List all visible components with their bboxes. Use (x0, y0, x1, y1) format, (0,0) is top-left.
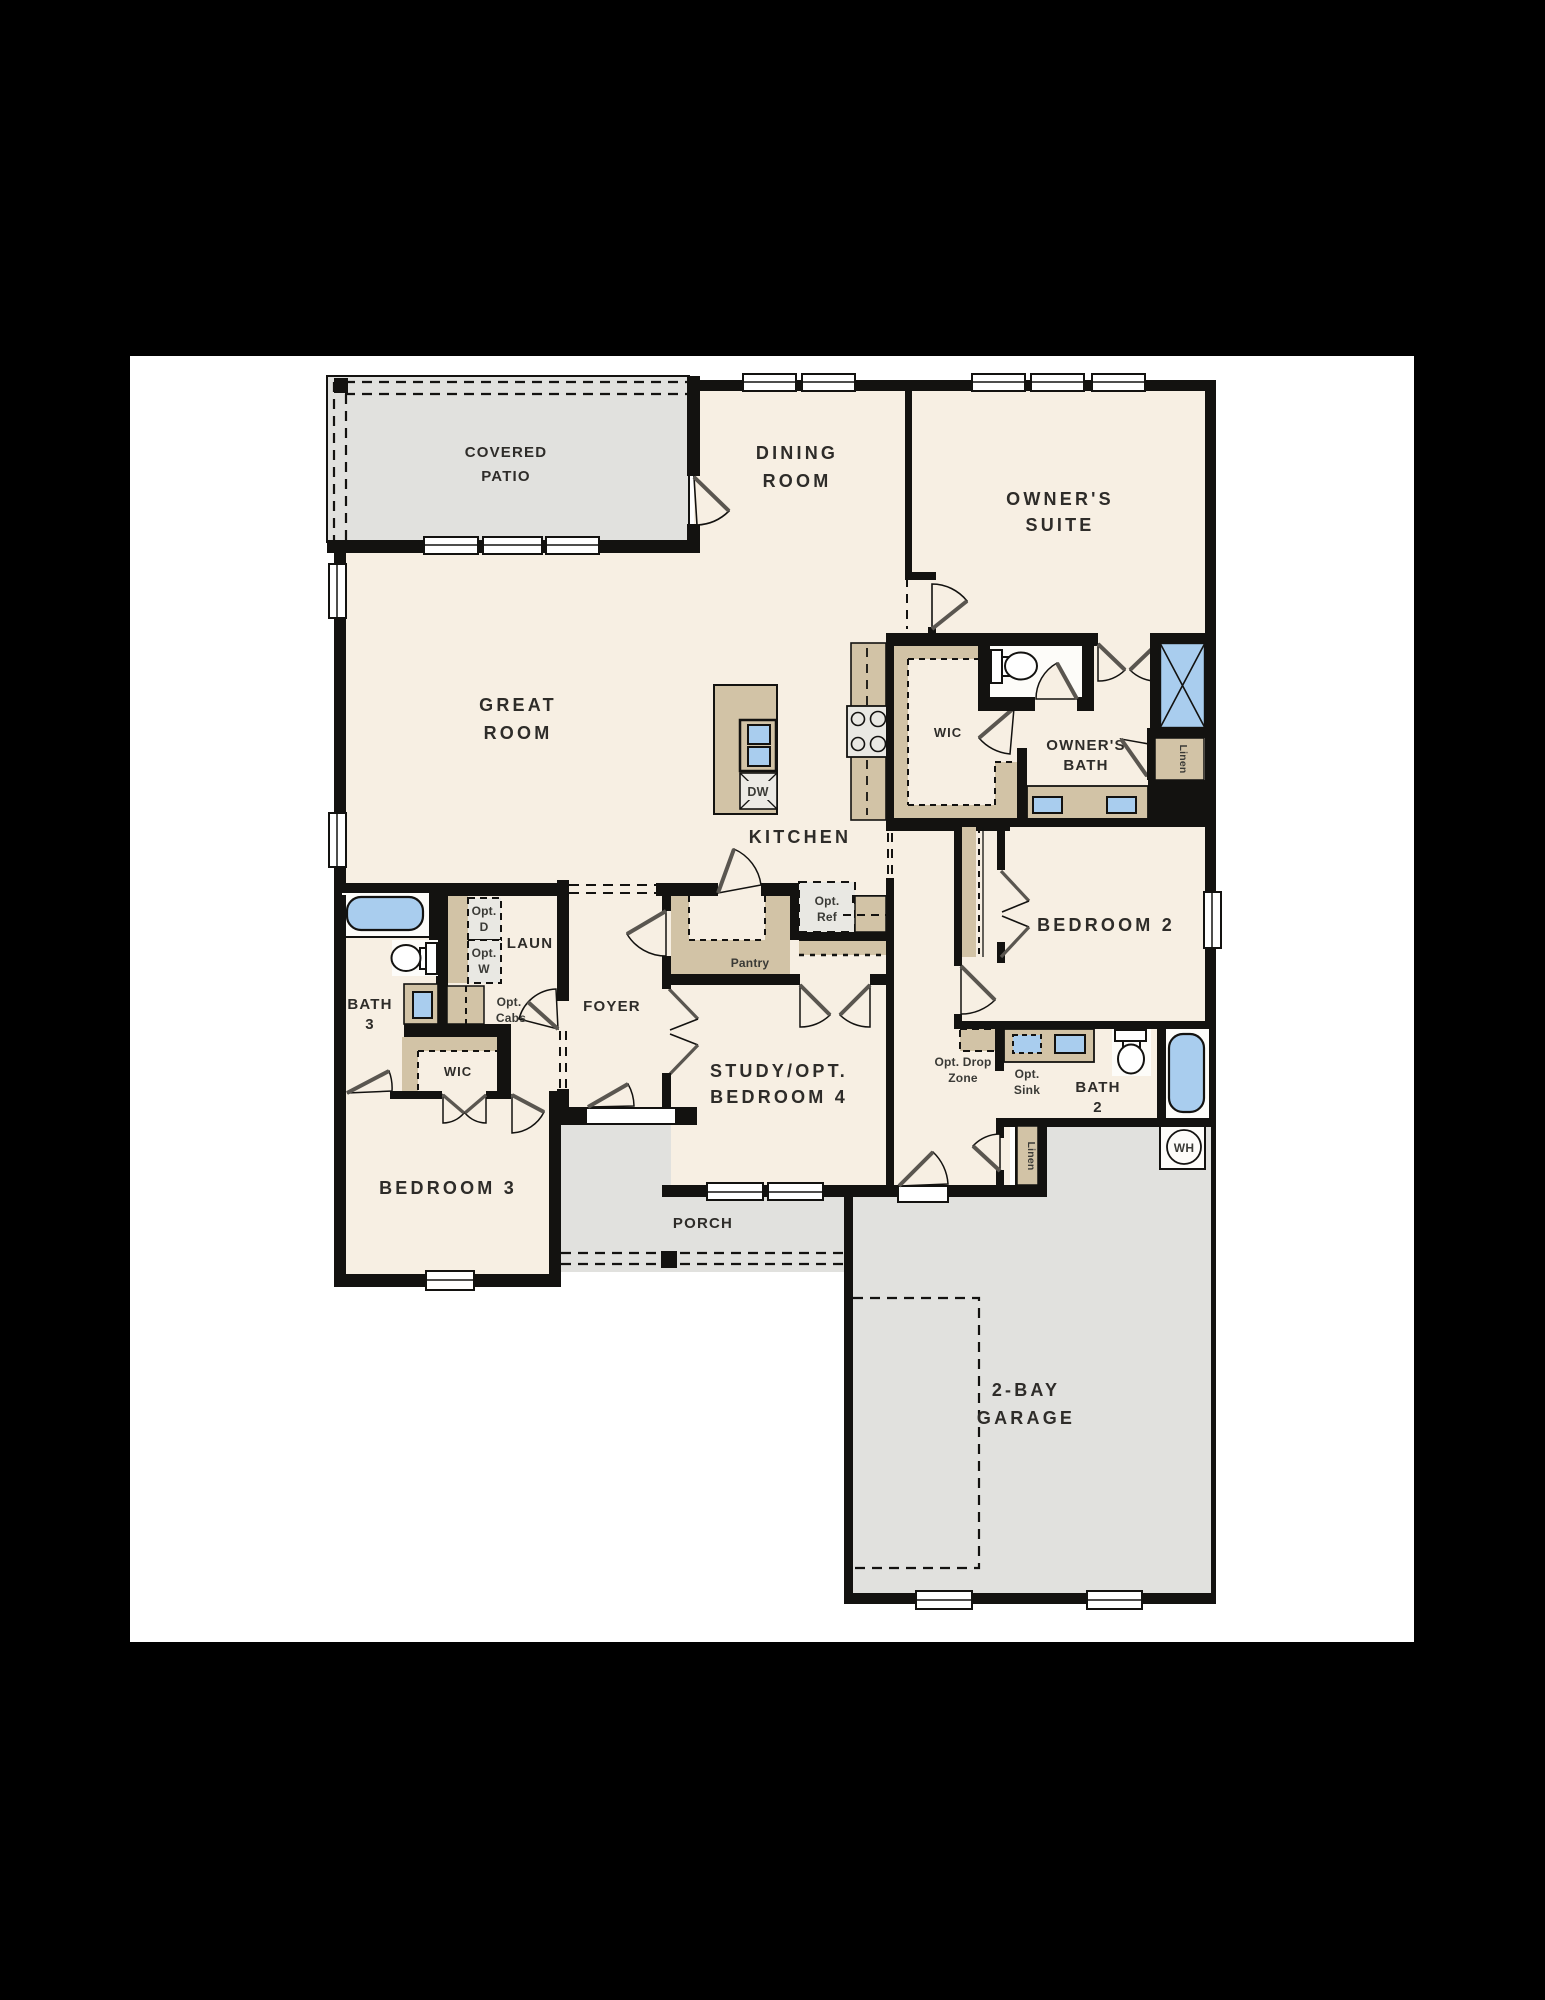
svg-text:Opt.: Opt. (815, 894, 840, 908)
svg-text:DINING: DINING (756, 443, 838, 463)
svg-text:D: D (480, 920, 489, 934)
svg-text:Opt.: Opt. (472, 946, 497, 960)
svg-text:Opt.: Opt. (497, 995, 522, 1009)
svg-text:Opt.: Opt. (472, 904, 497, 918)
svg-text:PATIO: PATIO (481, 468, 531, 485)
svg-text:W: W (478, 962, 490, 976)
svg-text:WIC: WIC (934, 725, 962, 740)
svg-text:GARAGE: GARAGE (977, 1408, 1075, 1428)
svg-text:COVERED: COVERED (465, 444, 548, 461)
svg-text:WIC: WIC (444, 1064, 472, 1079)
svg-text:FOYER: FOYER (583, 998, 641, 1015)
svg-text:Opt.: Opt. (1015, 1067, 1040, 1081)
svg-text:Opt. Drop: Opt. Drop (934, 1055, 991, 1069)
svg-text:OWNER'S: OWNER'S (1006, 489, 1114, 509)
svg-text:OWNER'S: OWNER'S (1046, 737, 1125, 754)
svg-text:LAUN: LAUN (507, 935, 553, 952)
svg-text:Pantry: Pantry (731, 956, 770, 970)
svg-text:DW: DW (747, 785, 768, 799)
svg-text:Linen: Linen (1177, 745, 1189, 774)
svg-text:WH: WH (1174, 1141, 1194, 1155)
svg-text:BEDROOM 3: BEDROOM 3 (379, 1178, 517, 1198)
svg-text:BATH: BATH (1075, 1079, 1120, 1096)
svg-text:PORCH: PORCH (673, 1215, 733, 1232)
svg-text:Ref: Ref (817, 910, 838, 924)
svg-text:STUDY/OPT.: STUDY/OPT. (710, 1061, 848, 1081)
svg-text:BATH: BATH (347, 996, 392, 1013)
svg-text:ROOM: ROOM (763, 471, 832, 491)
svg-text:GREAT: GREAT (479, 695, 557, 715)
svg-text:2-BAY: 2-BAY (992, 1380, 1060, 1400)
svg-text:2: 2 (1093, 1099, 1103, 1116)
svg-text:Zone: Zone (948, 1071, 978, 1085)
svg-text:Cabs: Cabs (496, 1011, 526, 1025)
svg-text:BEDROOM 2: BEDROOM 2 (1037, 915, 1175, 935)
svg-text:KITCHEN: KITCHEN (749, 827, 851, 847)
svg-text:BEDROOM 4: BEDROOM 4 (710, 1087, 848, 1107)
svg-text:Linen: Linen (1025, 1142, 1037, 1171)
svg-text:Sink: Sink (1014, 1083, 1040, 1097)
svg-text:ROOM: ROOM (484, 723, 553, 743)
svg-text:3: 3 (365, 1016, 375, 1033)
svg-text:BATH: BATH (1063, 757, 1108, 774)
svg-text:SUITE: SUITE (1025, 515, 1094, 535)
